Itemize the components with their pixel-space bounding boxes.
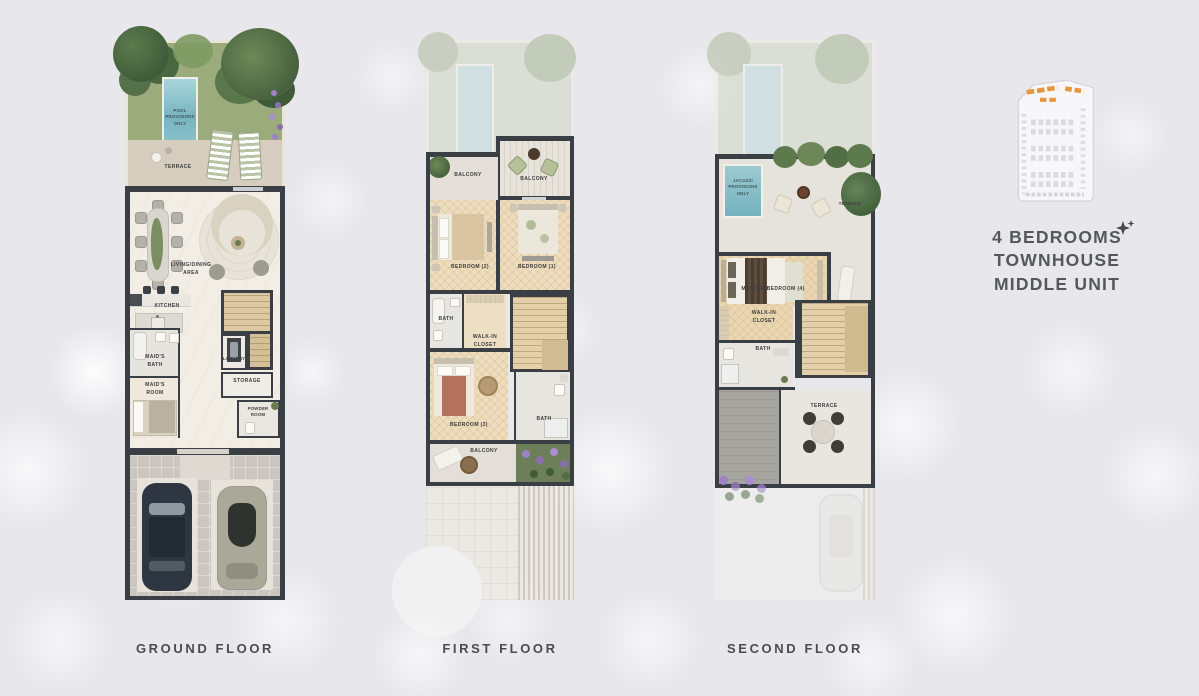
- blanket: [452, 214, 484, 260]
- console: [817, 260, 823, 302]
- wall: [125, 455, 130, 600]
- second-floor-plan: JACUZZI PROVISIONS ONLY TERRACE MASTER B…: [715, 40, 875, 600]
- ghost-garden: [715, 40, 875, 158]
- entry-mat: [180, 455, 230, 479]
- bed-pattern: [540, 234, 549, 243]
- dining-chair: [135, 212, 147, 224]
- ghost-tree: [815, 34, 869, 84]
- wall: [498, 136, 574, 141]
- car-roof: [149, 517, 185, 557]
- ground-floor-plan: POOL PROVISIONS ONLY TERRACE LIVING/DINI…: [125, 40, 285, 600]
- nightstand: [559, 204, 566, 212]
- ghost-path: [392, 546, 482, 636]
- pillow: [437, 366, 453, 376]
- pillow: [728, 262, 736, 278]
- terrace-table: [811, 420, 835, 444]
- terrace-table: [797, 186, 810, 199]
- unit-legend: 4 BEDROOMS TOWNHOUSE MIDDLE UNIT: [987, 226, 1127, 296]
- ghost-car-roof: [829, 514, 853, 558]
- toilet: [155, 332, 166, 342]
- first-floor-plan: BALCONY BALCONY BEDROOM (2) BEDROOM (1) …: [426, 40, 574, 600]
- ghost-tree: [418, 32, 458, 72]
- rattan-rug: [478, 376, 498, 396]
- vanity: [773, 348, 789, 356]
- plant-icon: [428, 156, 450, 178]
- table-runner-plant: [151, 218, 163, 270]
- balcony-table: [528, 148, 540, 160]
- entry-door: [177, 449, 229, 454]
- bar-stool: [171, 286, 179, 294]
- unit-title-line1: 4 BEDROOMS: [987, 226, 1127, 249]
- sun-lounger: [238, 131, 262, 180]
- flower-bed: [719, 476, 728, 485]
- plant-icon: [781, 376, 788, 383]
- dining-chair: [171, 260, 183, 272]
- plant-icon: [773, 146, 797, 168]
- rear-window: [149, 561, 185, 571]
- sink: [169, 333, 179, 343]
- blanket: [745, 258, 767, 304]
- shower: [721, 364, 739, 384]
- faucet-icon: [156, 315, 159, 318]
- jacuzzi: [723, 164, 763, 218]
- nightstand: [432, 264, 440, 271]
- armchair: [253, 260, 269, 276]
- nightstand: [432, 206, 440, 213]
- plant-icon: [841, 172, 881, 216]
- pillow: [439, 218, 449, 238]
- car-sedan: [142, 483, 192, 591]
- dining-chair: [135, 236, 147, 248]
- ghost-driveway: [715, 488, 875, 600]
- plant-icon: [235, 240, 241, 246]
- patio-table: [151, 152, 162, 163]
- headboard: [721, 260, 726, 302]
- bathtub: [133, 332, 147, 360]
- plant-icon: [847, 144, 873, 168]
- dining-chair: [135, 260, 147, 272]
- blanket: [149, 401, 175, 433]
- stove: [130, 294, 142, 306]
- flower-bed: [522, 450, 530, 458]
- armchair: [209, 264, 225, 280]
- unit-title-line2: TOWNHOUSE: [987, 249, 1127, 272]
- tree-icon: [221, 28, 299, 100]
- wall: [496, 200, 500, 292]
- caption-second-floor: SECOND FLOOR: [715, 641, 875, 656]
- wardrobe: [719, 306, 729, 340]
- bench: [487, 222, 492, 252]
- walk-in-closet: [719, 306, 793, 340]
- curved-sofa-cutout: [219, 210, 265, 256]
- windshield: [149, 503, 185, 515]
- ghost-car: [819, 494, 863, 592]
- terrace-chair: [803, 440, 816, 453]
- storage-room: [221, 372, 273, 398]
- sliding-door: [233, 187, 263, 191]
- wall: [570, 136, 574, 484]
- flower-bed: [271, 90, 277, 96]
- roof-strip: [719, 390, 781, 488]
- ghost-pergola: [518, 486, 574, 600]
- rug: [785, 262, 803, 302]
- toilet: [723, 348, 734, 360]
- car-sports: [217, 486, 267, 590]
- vanity: [560, 374, 568, 382]
- bed-pattern: [526, 220, 536, 230]
- tree-icon: [113, 26, 169, 82]
- ghost-ground: [426, 486, 574, 600]
- bar-stool: [157, 286, 165, 294]
- wardrobe: [466, 295, 504, 303]
- wall: [280, 186, 285, 456]
- ghost-pool: [456, 64, 494, 158]
- car-canopy: [228, 503, 256, 547]
- stairs-upper: [221, 290, 273, 334]
- stairs-lower: [247, 334, 273, 370]
- pillow: [134, 402, 143, 432]
- dining-chair: [171, 212, 183, 224]
- patio-chair: [165, 147, 172, 154]
- sparkle-icon: [1114, 219, 1136, 241]
- bar-stool: [143, 286, 151, 294]
- palm-icon: [173, 34, 213, 68]
- page-background: POOL PROVISIONS ONLY TERRACE LIVING/DINI…: [0, 0, 1199, 696]
- toilet: [245, 422, 255, 434]
- terrace-chair: [803, 412, 816, 425]
- terrace-chair: [831, 440, 844, 453]
- pillow: [439, 239, 449, 259]
- blanket: [442, 376, 466, 416]
- nightstand: [510, 204, 517, 212]
- ghost-pool: [743, 64, 783, 156]
- wall: [280, 455, 285, 600]
- toilet: [554, 384, 565, 396]
- dining-chair: [171, 236, 183, 248]
- toilet: [433, 330, 443, 341]
- sink: [450, 298, 460, 307]
- washer-drum: [230, 342, 238, 358]
- bench: [522, 256, 554, 261]
- ghost-tree: [524, 34, 576, 82]
- plant-icon: [825, 146, 849, 168]
- wall: [125, 596, 285, 600]
- stair-landing: [845, 306, 868, 372]
- plant-icon: [797, 142, 825, 166]
- ghost-pergola: [863, 488, 875, 600]
- unit-title-line3: MIDDLE UNIT: [987, 273, 1127, 296]
- plant-icon: [271, 402, 279, 410]
- rattan-table: [460, 456, 478, 474]
- car-hood: [226, 563, 258, 579]
- caption-ground-floor: GROUND FLOOR: [125, 641, 285, 656]
- bed-bedroom1: [518, 210, 558, 254]
- shower: [544, 418, 568, 438]
- pillow: [455, 366, 471, 376]
- site-plan-icon: [1009, 74, 1099, 210]
- caption-first-floor: FIRST FLOOR: [426, 641, 574, 656]
- terrace-chair: [831, 412, 844, 425]
- bathtub: [432, 298, 445, 324]
- pillow: [728, 282, 736, 298]
- stair-landing: [542, 340, 568, 370]
